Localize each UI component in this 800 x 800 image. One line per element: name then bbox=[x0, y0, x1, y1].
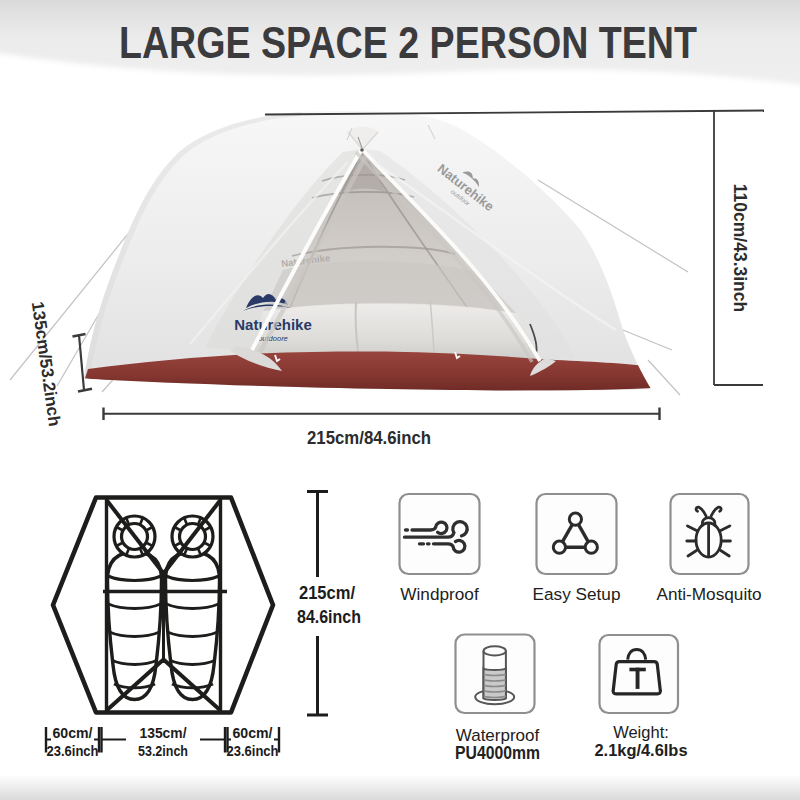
svg-text:Easy Setup: Easy Setup bbox=[533, 584, 621, 604]
svg-text:215cm/: 215cm/ bbox=[299, 582, 356, 603]
svg-text:135cm/: 135cm/ bbox=[140, 725, 187, 741]
svg-text:Windproof: Windproof bbox=[400, 584, 479, 604]
svg-text:Anti-Mosquito: Anti-Mosquito bbox=[656, 584, 761, 604]
svg-text:LARGE SPACE 2 PERSON TENT: LARGE SPACE 2 PERSON TENT bbox=[119, 18, 697, 67]
svg-text:53.2inch: 53.2inch bbox=[138, 743, 188, 759]
svg-text:84.6inch: 84.6inch bbox=[297, 606, 361, 627]
svg-text:60cm/: 60cm/ bbox=[233, 725, 273, 741]
svg-text:215cm/84.6inch: 215cm/84.6inch bbox=[307, 428, 431, 448]
svg-text:PU4000mm: PU4000mm bbox=[455, 743, 540, 763]
svg-text:23.6inch: 23.6inch bbox=[227, 743, 279, 759]
svg-text:23.6inch: 23.6inch bbox=[47, 743, 99, 759]
svg-text:60cm/: 60cm/ bbox=[53, 725, 93, 741]
svg-text:outdoore: outdoore bbox=[258, 334, 288, 343]
svg-text:Weight:: Weight: bbox=[613, 723, 669, 741]
svg-text:2.1kg/4.6lbs: 2.1kg/4.6lbs bbox=[595, 741, 688, 760]
svg-text:110cm/43.3inch: 110cm/43.3inch bbox=[730, 184, 750, 312]
